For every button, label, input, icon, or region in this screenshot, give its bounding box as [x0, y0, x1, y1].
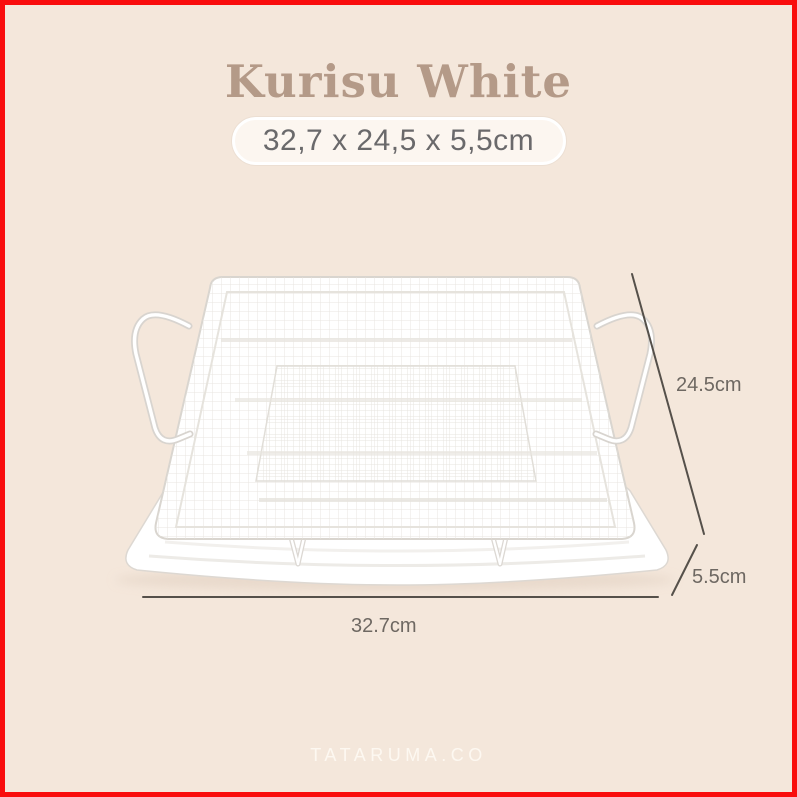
- mesh-basket: [156, 277, 635, 539]
- product-card: Kurisu White 32,7 x 24,5 x 5,5cm: [0, 0, 797, 797]
- size-badge: 32,7 x 24,5 x 5,5cm: [232, 117, 566, 165]
- depth-dimension-label: 5.5cm: [692, 566, 746, 589]
- page-title: Kurisu White: [5, 55, 792, 108]
- brand-watermark: TATARUMA.CO: [5, 745, 792, 766]
- height-dimension-label: 24.5cm: [676, 374, 742, 397]
- size-badge-label: 32,7 x 24,5 x 5,5cm: [263, 124, 534, 158]
- width-dimension-label: 32.7cm: [351, 615, 417, 638]
- product-image: [77, 248, 707, 598]
